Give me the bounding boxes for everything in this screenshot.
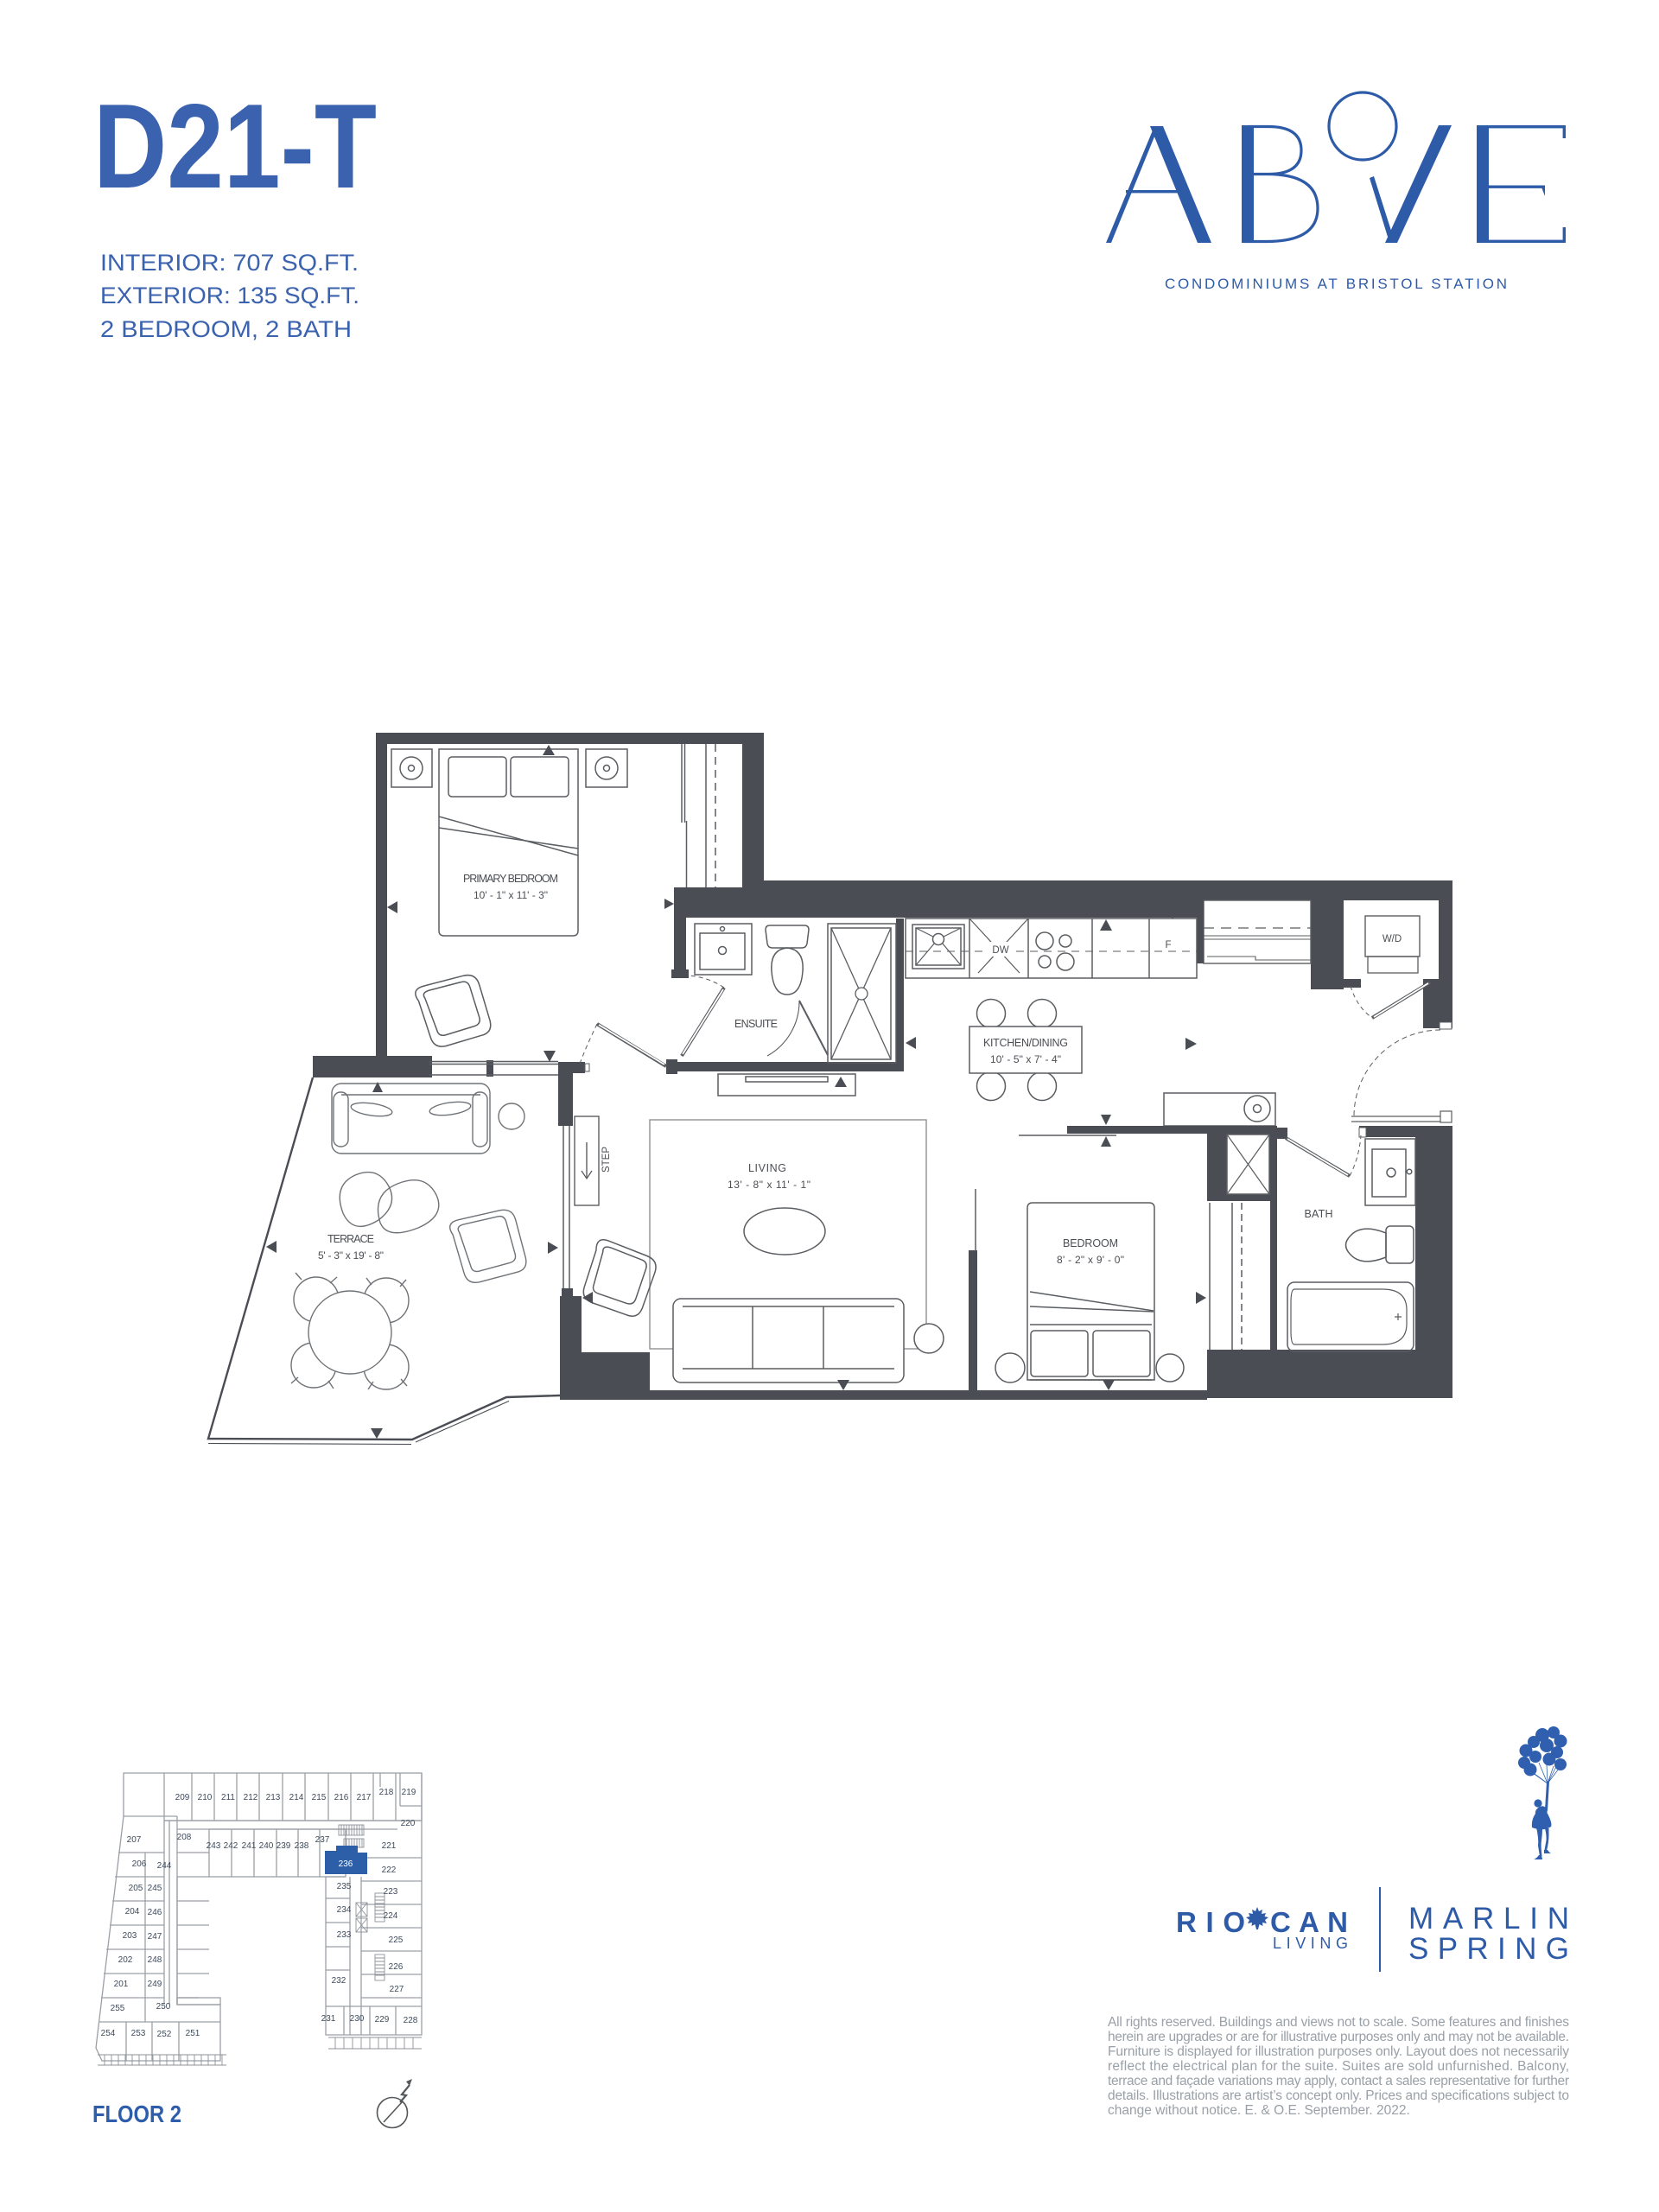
svg-text:210: 210 <box>198 1793 213 1802</box>
svg-text:223: 223 <box>384 1887 398 1897</box>
svg-text:TERRACE: TERRACE <box>327 1233 374 1245</box>
svg-text:232: 232 <box>332 1976 346 1986</box>
svg-text:10' - 1" x 11' - 3": 10' - 1" x 11' - 3" <box>474 889 548 901</box>
svg-text:241: 241 <box>242 1841 257 1851</box>
svg-text:227: 227 <box>390 1985 404 1994</box>
svg-text:231: 231 <box>321 2014 336 2024</box>
svg-text:EXTERIOR: 135 SQ.FT.: EXTERIOR: 135 SQ.FT. <box>100 283 359 308</box>
svg-text:ENSUITE: ENSUITE <box>734 1018 778 1030</box>
svg-text:249: 249 <box>148 1980 162 1989</box>
svg-text:5' - 3" x 19' - 8": 5' - 3" x 19' - 8" <box>318 1249 384 1262</box>
svg-text:STEP: STEP <box>601 1147 612 1173</box>
svg-text:236: 236 <box>339 1859 353 1869</box>
svg-text:234: 234 <box>337 1905 352 1915</box>
svg-text:213: 213 <box>266 1793 281 1802</box>
svg-text:251: 251 <box>186 2029 200 2038</box>
svg-text:228: 228 <box>404 2016 418 2025</box>
svg-text:LIVING: LIVING <box>748 1162 786 1174</box>
svg-text:224: 224 <box>384 1911 398 1921</box>
svg-text:208: 208 <box>177 1833 192 1842</box>
svg-text:254: 254 <box>101 2029 116 2038</box>
svg-text:PRIMARY BEDROOM: PRIMARY BEDROOM <box>463 873 558 885</box>
svg-text:205: 205 <box>129 1884 143 1893</box>
svg-text:237: 237 <box>315 1835 330 1845</box>
svg-text:F: F <box>1165 940 1171 950</box>
svg-text:DW: DW <box>992 945 1008 956</box>
svg-text:211: 211 <box>221 1793 235 1802</box>
svg-text:reflect the electrical plan fo: reflect the electrical plan for the suit… <box>1108 2059 1569 2074</box>
svg-text:220: 220 <box>401 1819 416 1828</box>
svg-text:246: 246 <box>148 1908 162 1917</box>
svg-text:230: 230 <box>350 2014 365 2024</box>
svg-text:238: 238 <box>295 1841 309 1851</box>
svg-text:204: 204 <box>125 1907 140 1916</box>
svg-text:212: 212 <box>244 1793 258 1802</box>
svg-text:D21-T: D21-T <box>93 79 377 213</box>
svg-text:10' - 5" x 7' - 4": 10' - 5" x 7' - 4" <box>990 1053 1061 1065</box>
svg-text:221: 221 <box>382 1841 397 1851</box>
svg-text:225: 225 <box>389 1935 404 1945</box>
svg-text:255: 255 <box>111 2004 125 2013</box>
svg-text:herein are upgrades or are for: herein are upgrades or are for illustrat… <box>1108 2030 1569 2044</box>
svg-text:KITCHEN/DINING: KITCHEN/DINING <box>983 1037 1068 1049</box>
svg-text:235: 235 <box>337 1882 352 1891</box>
svg-text:All rights reserved. Buildings: All rights reserved. Buildings and views… <box>1108 2015 1569 2030</box>
svg-text:13' - 8" x 11' - 1": 13' - 8" x 11' - 1" <box>728 1179 810 1191</box>
svg-text:248: 248 <box>148 1955 162 1965</box>
svg-text:245: 245 <box>148 1884 162 1893</box>
svg-text:222: 222 <box>382 1866 397 1875</box>
svg-text:201: 201 <box>114 1980 129 1989</box>
svg-text:240: 240 <box>259 1841 274 1851</box>
svg-text:206: 206 <box>132 1859 147 1869</box>
svg-text:CAN: CAN <box>1270 1906 1348 1938</box>
svg-text:2 BEDROOM, 2 BATH: 2 BEDROOM, 2 BATH <box>100 316 352 342</box>
svg-text:203: 203 <box>123 1931 137 1941</box>
svg-text:244: 244 <box>157 1861 172 1871</box>
svg-text:209: 209 <box>175 1793 190 1802</box>
svg-text:219: 219 <box>402 1788 416 1797</box>
svg-text:247: 247 <box>148 1932 162 1942</box>
svg-text:215: 215 <box>312 1793 327 1802</box>
svg-text:change without notice. E. & O.: change without notice. E. & O.E. Septemb… <box>1108 2103 1410 2118</box>
svg-text:253: 253 <box>131 2029 146 2038</box>
svg-text:INTERIOR: 707 SQ.FT.: INTERIOR: 707 SQ.FT. <box>100 250 359 276</box>
svg-text:details. Illustrations are art: details. Illustrations are artist’s conc… <box>1108 2088 1569 2103</box>
svg-text:226: 226 <box>389 1962 404 1972</box>
svg-text:FLOOR 2: FLOOR 2 <box>92 2101 181 2127</box>
svg-text:242: 242 <box>224 1841 238 1851</box>
svg-text:252: 252 <box>157 2030 172 2039</box>
svg-text:terrace and façade variations: terrace and façade variations may apply,… <box>1108 2074 1569 2088</box>
svg-text:216: 216 <box>334 1793 349 1802</box>
svg-text:233: 233 <box>337 1930 352 1940</box>
svg-text:239: 239 <box>276 1841 291 1851</box>
svg-text:207: 207 <box>127 1835 142 1845</box>
svg-text:Furniture is displayed for ill: Furniture is displayed for illustration … <box>1108 2044 1569 2059</box>
svg-text:243: 243 <box>207 1841 221 1851</box>
svg-text:RIO: RIO <box>1176 1906 1245 1938</box>
svg-text:BATH: BATH <box>1305 1208 1333 1220</box>
svg-text:250: 250 <box>156 2002 171 2012</box>
svg-text:217: 217 <box>357 1793 372 1802</box>
svg-text:BEDROOM: BEDROOM <box>1063 1237 1118 1249</box>
svg-text:214: 214 <box>289 1793 304 1802</box>
svg-text:218: 218 <box>379 1788 394 1797</box>
svg-text:202: 202 <box>118 1955 133 1965</box>
svg-text:W/D: W/D <box>1382 934 1402 944</box>
svg-text:229: 229 <box>375 2015 390 2024</box>
svg-text:8' - 2" x 9' - 0": 8' - 2" x 9' - 0" <box>1057 1254 1124 1266</box>
